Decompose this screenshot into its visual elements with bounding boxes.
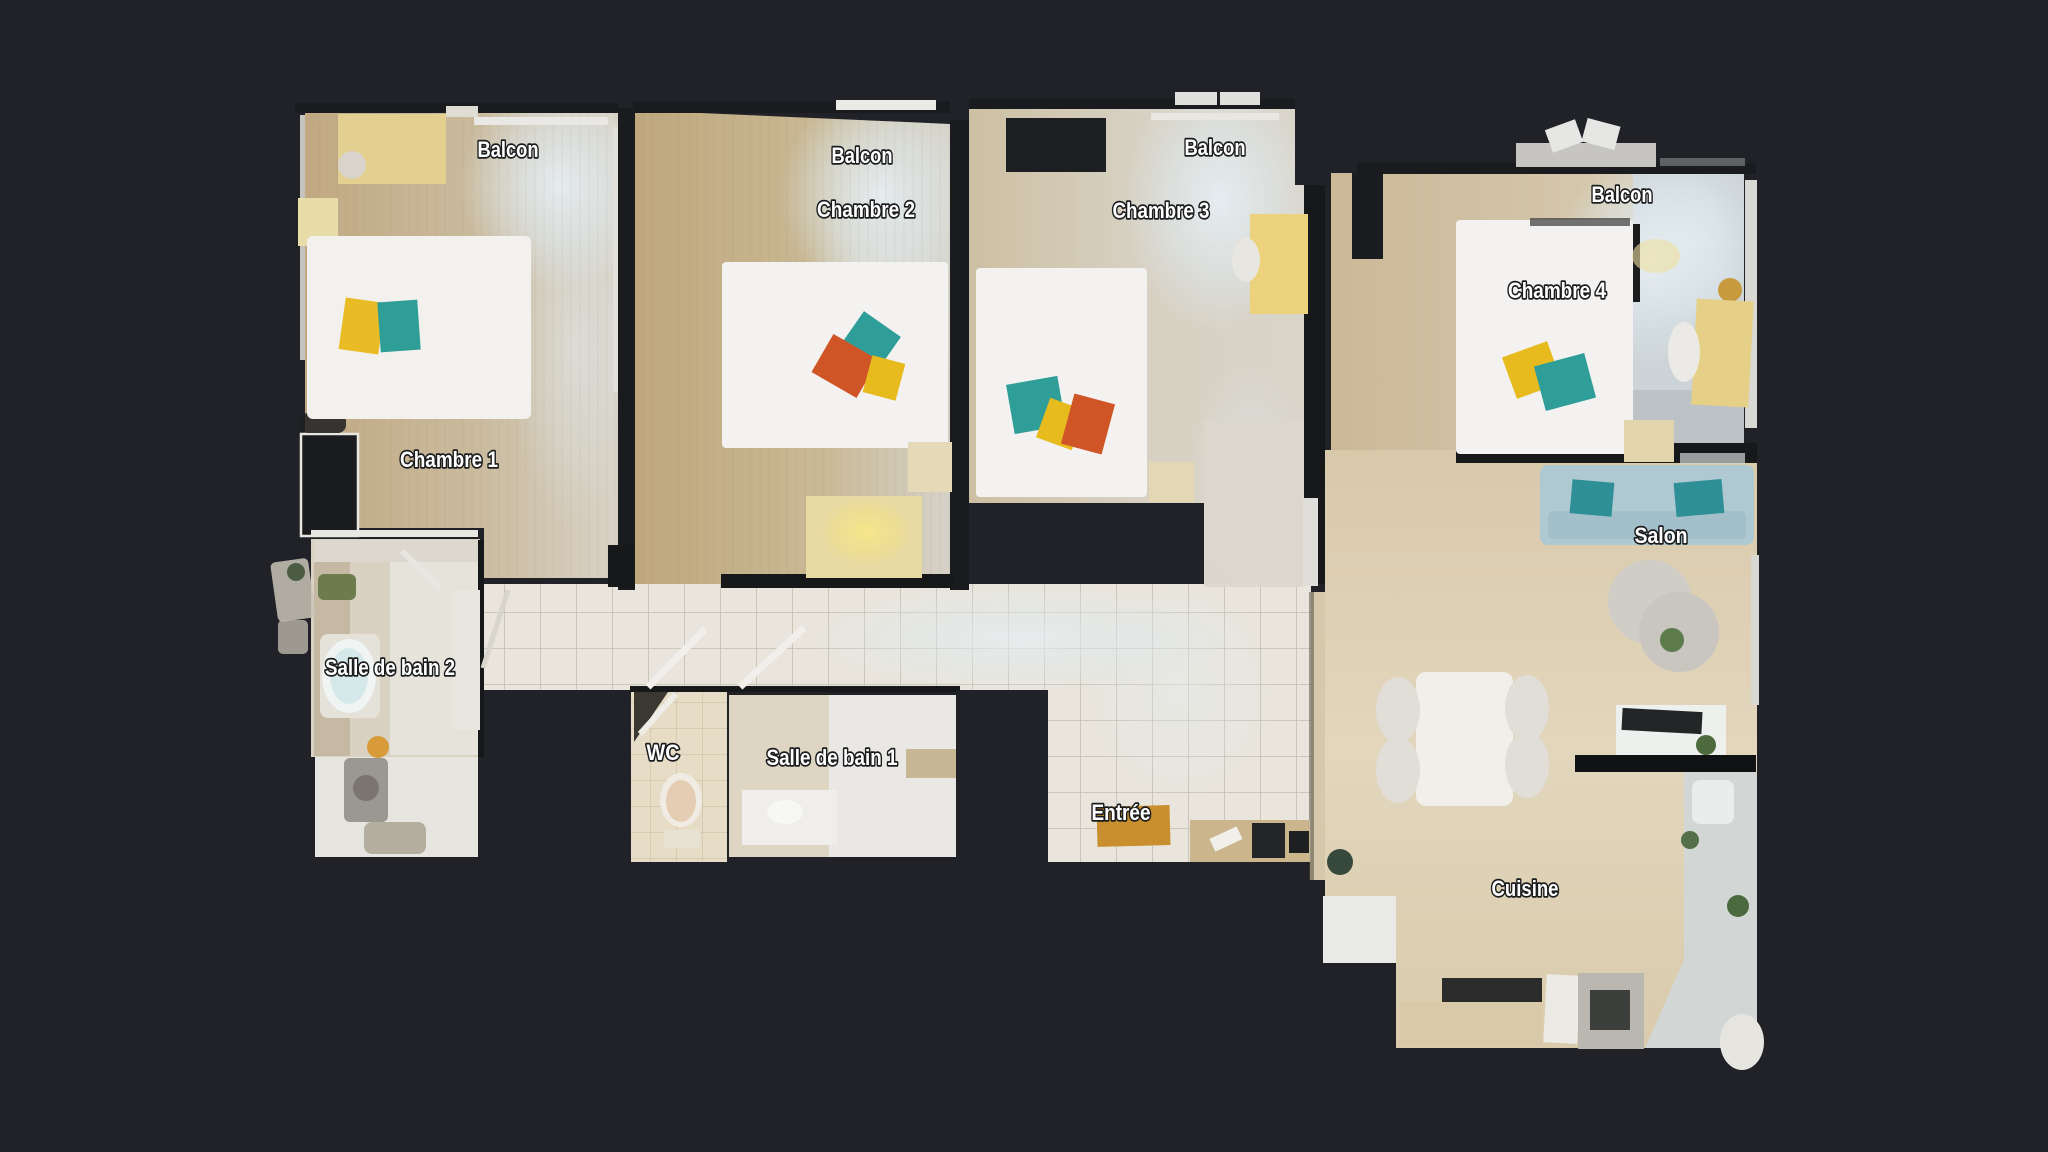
svg-text:Chambre 3: Chambre 3 xyxy=(1113,198,1210,223)
svg-text:Entrée: Entrée xyxy=(1092,800,1151,825)
svg-text:Chambre 1: Chambre 1 xyxy=(400,447,498,472)
svg-text:Salle de bain 1: Salle de bain 1 xyxy=(767,745,898,770)
svg-text:WC: WC xyxy=(647,740,680,765)
svg-text:Balcon: Balcon xyxy=(832,143,893,168)
svg-text:Salon: Salon xyxy=(1635,523,1688,548)
svg-text:Balcon: Balcon xyxy=(1185,135,1246,160)
svg-text:Chambre 2: Chambre 2 xyxy=(817,197,915,222)
svg-text:Balcon: Balcon xyxy=(1592,182,1653,207)
svg-text:Salle de bain 2: Salle de bain 2 xyxy=(325,655,455,680)
svg-text:Cuisine: Cuisine xyxy=(1492,876,1559,901)
svg-text:Balcon: Balcon xyxy=(478,137,539,162)
svg-text:Chambre 4: Chambre 4 xyxy=(1508,278,1606,303)
